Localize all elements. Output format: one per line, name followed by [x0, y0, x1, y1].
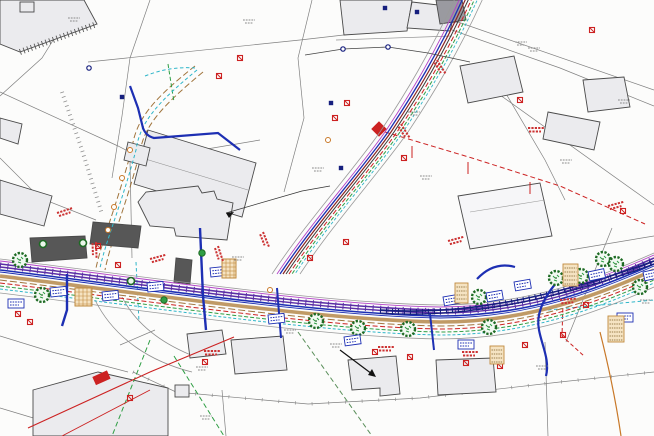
- building: [90, 222, 141, 248]
- gray-text-lines: [196, 367, 208, 370]
- building: [0, 180, 52, 226]
- tree-icon: [13, 253, 27, 267]
- site-plan-canvas: [0, 0, 654, 436]
- manhole-icon: [120, 176, 125, 181]
- power-line: [562, 302, 584, 356]
- red-text-lines: [448, 237, 464, 245]
- hydrant-icon: [120, 95, 124, 99]
- marker-cross: [408, 355, 413, 360]
- tree-trunk: [478, 296, 480, 298]
- parcel-number-text: [196, 367, 208, 370]
- marker-cross: [16, 312, 21, 317]
- utility-marker-icon: [333, 116, 338, 121]
- gray-text-lines: [330, 344, 342, 347]
- water-main-line: [62, 274, 67, 326]
- utility-marker-icon: [16, 312, 21, 317]
- utility-label: [268, 313, 285, 324]
- layer-buildings: [0, 0, 630, 436]
- building: [231, 336, 287, 374]
- node-icon: [341, 47, 345, 51]
- parcel-number-text: [243, 20, 255, 23]
- marker-cross: [373, 350, 378, 355]
- layer-misc: [226, 45, 621, 436]
- marker-cross: [116, 263, 121, 268]
- red-annotation-text: [57, 208, 73, 216]
- parcel-boundary-line: [120, 330, 155, 345]
- marker-cross: [621, 209, 626, 214]
- tree-icon: [35, 288, 49, 302]
- gray-text-lines: [284, 330, 296, 333]
- tree-trunk: [357, 327, 359, 329]
- corridor-utility-line: [300, 0, 484, 274]
- parcel-number-text: [312, 168, 324, 171]
- utility-label: [458, 340, 474, 349]
- building: [340, 0, 412, 35]
- parcel-boundary-line: [222, 390, 226, 436]
- gray-text-lines: [243, 20, 255, 23]
- tree-icon: [549, 271, 563, 285]
- red-text-lines: [260, 232, 269, 248]
- corridor-utility-line: [280, 0, 464, 274]
- parcel-number-text: [284, 330, 296, 333]
- utility-marker-icon: [408, 355, 413, 360]
- shrub-icon: [199, 250, 205, 256]
- utility-label: [147, 281, 164, 292]
- node-icon: [87, 66, 91, 70]
- marker-cross: [344, 240, 349, 245]
- red-annotation-text: [378, 347, 394, 351]
- building: [543, 112, 600, 150]
- drain-line: [168, 64, 174, 102]
- building: [20, 2, 34, 12]
- building: [458, 183, 552, 249]
- label-box: [268, 313, 285, 324]
- tree-icon: [609, 257, 623, 271]
- gray-text-lines: [200, 416, 212, 419]
- building: [30, 236, 87, 262]
- label-box: [102, 290, 119, 301]
- red-annotation-text: [150, 255, 166, 263]
- tree-trunk: [407, 328, 409, 330]
- red-annotation-text: [215, 246, 223, 262]
- label-box: [147, 281, 164, 292]
- red-text-lines: [528, 128, 544, 132]
- utility-marker-icon: [345, 101, 350, 106]
- marker-cross: [523, 343, 528, 348]
- chainage-table: [455, 283, 468, 303]
- red-text-lines: [215, 246, 223, 262]
- red-text-lines: [57, 208, 73, 216]
- red-text-lines: [462, 352, 478, 356]
- tree-trunk: [555, 277, 557, 279]
- marker-cross: [590, 28, 595, 33]
- gray-text-lines: [420, 176, 432, 179]
- table-box: [563, 264, 578, 286]
- building: [0, 118, 22, 144]
- utility-marker-icon: [28, 320, 33, 325]
- hydrant-icon: [383, 6, 387, 10]
- utility-label: [344, 335, 361, 346]
- utility-marker-icon: [518, 98, 523, 103]
- manhole-icon: [112, 205, 117, 210]
- shrub-icon: [161, 297, 167, 303]
- tree-icon: [472, 290, 486, 304]
- red-text-lines: [150, 255, 166, 263]
- tree-trunk: [580, 275, 582, 277]
- utility-label: [50, 286, 67, 297]
- parcel-number-text: [408, 112, 420, 115]
- utility-label: [8, 299, 24, 308]
- grid-table: [222, 259, 236, 278]
- red-annotation-text: [462, 352, 478, 356]
- grid-box: [75, 288, 92, 306]
- parcel-number-text: [330, 344, 342, 347]
- label-box: [8, 299, 24, 308]
- corridor-utility-line: [277, 0, 461, 274]
- utility-marker-icon: [238, 56, 243, 61]
- layer-road-corridor: [0, 253, 654, 339]
- marker-cross: [203, 360, 208, 365]
- marker-cross: [402, 156, 407, 161]
- corridor-utility-line: [272, 0, 456, 274]
- parcel-boundary-hedge: [62, 92, 102, 214]
- tree-icon: [633, 280, 647, 294]
- label-box: [344, 335, 361, 346]
- red-text-lines: [378, 347, 394, 351]
- table-box: [490, 346, 504, 364]
- utility-marker-icon: [217, 74, 222, 79]
- node-icon: [386, 45, 390, 49]
- site-plan-viewport: [0, 0, 654, 436]
- chainage-table: [490, 346, 504, 364]
- parcel-boundary-line: [0, 336, 128, 372]
- parcel-number-text: [420, 176, 432, 179]
- marker-cross: [28, 320, 33, 325]
- tree-trunk: [602, 258, 604, 260]
- red-annotation-text: [260, 232, 269, 248]
- hydrant-icon: [329, 101, 333, 105]
- marker-cross: [217, 74, 222, 79]
- tree-trunk: [488, 326, 490, 328]
- hydrant-icon: [415, 10, 419, 14]
- building: [583, 77, 630, 112]
- tree-icon: [401, 322, 415, 336]
- parcel-number-text: [200, 416, 212, 419]
- chainage-table: [563, 264, 578, 286]
- tree-trunk: [41, 294, 43, 296]
- manhole-icon: [128, 148, 133, 153]
- label-box: [50, 286, 67, 297]
- grid-table: [75, 288, 92, 306]
- chainage-table: [608, 316, 624, 342]
- utility-label: [102, 290, 119, 301]
- hydrant-icon: [339, 166, 343, 170]
- gray-text-lines: [560, 160, 572, 163]
- layer-diagonal-corridor: [272, 0, 484, 274]
- utility-marker-icon: [116, 263, 121, 268]
- table-box: [455, 283, 468, 303]
- utility-label: [514, 279, 531, 291]
- utility-marker-icon: [203, 360, 208, 365]
- marker-cross: [345, 101, 350, 106]
- utility-marker-icon: [373, 350, 378, 355]
- label-box: [458, 340, 474, 349]
- tree-icon: [596, 252, 610, 266]
- red-annotation-text: [448, 237, 464, 245]
- manhole-icon: [106, 228, 111, 233]
- parcel-boundary-line: [570, 236, 654, 250]
- utility-label: [486, 290, 503, 302]
- tree-icon: [482, 320, 496, 334]
- building: [0, 0, 97, 52]
- tree-trunk: [315, 320, 317, 322]
- marker-cross: [333, 116, 338, 121]
- valve-icon: [128, 278, 135, 285]
- utility-marker-icon: [621, 209, 626, 214]
- gray-text-lines: [312, 168, 324, 171]
- manhole-icon: [326, 138, 331, 143]
- water-main-line: [477, 266, 515, 280]
- tree-icon: [309, 314, 323, 328]
- utility-marker-icon: [344, 240, 349, 245]
- building: [175, 385, 189, 397]
- marker-cross: [518, 98, 523, 103]
- orange-cable-line: [600, 332, 621, 436]
- marker-cross: [238, 56, 243, 61]
- tree-trunk: [615, 263, 617, 265]
- utility-marker-icon: [590, 28, 595, 33]
- valve-icon: [40, 241, 47, 248]
- parcel-number-text: [560, 160, 572, 163]
- building: [460, 56, 523, 103]
- manhole-icon: [268, 288, 273, 293]
- utility-marker-icon: [523, 343, 528, 348]
- red-annotation-text: [528, 128, 544, 132]
- lane-edge: [122, 297, 196, 357]
- tree-icon: [351, 321, 365, 335]
- tree-trunk: [639, 286, 641, 288]
- valve-icon: [80, 240, 87, 247]
- parcel-boundary-line: [284, 0, 312, 192]
- utility-marker-icon: [402, 156, 407, 161]
- gray-text-lines: [408, 112, 420, 115]
- tree-trunk: [19, 259, 21, 261]
- building: [174, 258, 192, 284]
